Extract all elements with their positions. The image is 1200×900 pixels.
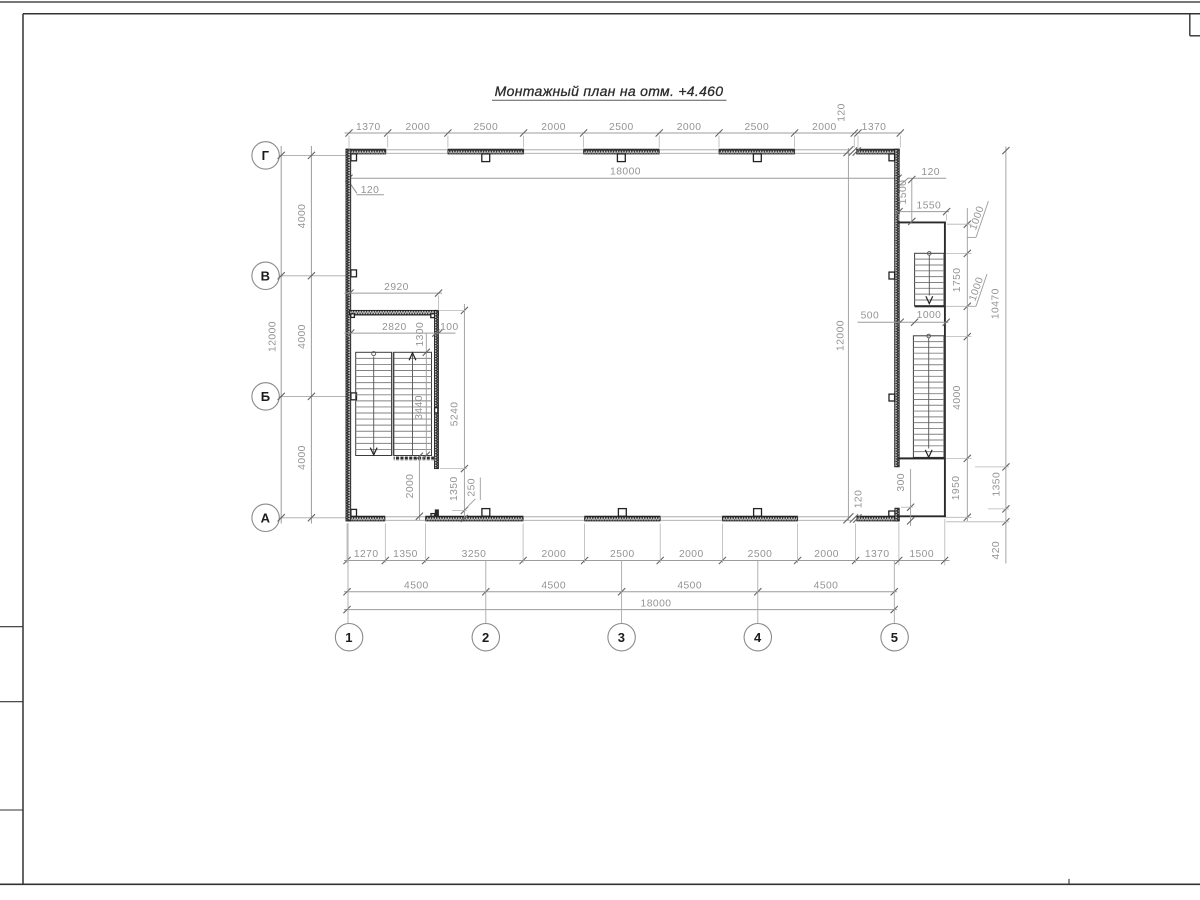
svg-text:1: 1 — [345, 630, 353, 645]
svg-text:18000: 18000 — [610, 167, 641, 178]
svg-text:1350: 1350 — [992, 472, 1003, 497]
svg-text:2500: 2500 — [609, 122, 634, 133]
svg-text:4500: 4500 — [677, 581, 702, 592]
svg-text:500: 500 — [861, 310, 880, 321]
svg-text:250: 250 — [466, 478, 477, 497]
svg-text:1370: 1370 — [865, 549, 890, 560]
svg-text:1950: 1950 — [951, 476, 962, 501]
svg-text:12000: 12000 — [267, 321, 278, 352]
svg-text:2000: 2000 — [679, 549, 704, 560]
svg-text:1500: 1500 — [898, 180, 909, 205]
svg-text:1370: 1370 — [356, 122, 381, 133]
svg-text:2500: 2500 — [748, 549, 773, 560]
svg-text:5: 5 — [891, 630, 899, 645]
svg-text:2500: 2500 — [744, 122, 769, 133]
svg-text:120: 120 — [836, 103, 847, 122]
svg-text:4000: 4000 — [952, 385, 963, 410]
svg-text:4: 4 — [754, 630, 762, 645]
svg-text:2000: 2000 — [812, 122, 837, 133]
svg-text:4500: 4500 — [541, 581, 566, 592]
svg-text:2000: 2000 — [541, 122, 566, 133]
svg-text:3440: 3440 — [414, 395, 425, 420]
svg-text:100: 100 — [440, 322, 459, 333]
svg-text:10470: 10470 — [991, 288, 1002, 319]
svg-text:5240: 5240 — [449, 402, 460, 427]
svg-text:Б: Б — [261, 389, 271, 404]
svg-text:2000: 2000 — [405, 122, 430, 133]
svg-text:1500: 1500 — [909, 549, 934, 560]
svg-text:300: 300 — [896, 473, 907, 492]
svg-text:2000: 2000 — [677, 122, 702, 133]
svg-text:3: 3 — [618, 630, 626, 645]
svg-text:Монтажный план на отм. +4.460: Монтажный план на отм. +4.460 — [495, 83, 724, 99]
svg-text:1350: 1350 — [393, 549, 418, 560]
svg-text:2920: 2920 — [384, 282, 409, 293]
svg-text:3250: 3250 — [462, 549, 487, 560]
svg-text:120: 120 — [361, 185, 380, 196]
svg-text:4000: 4000 — [297, 445, 308, 470]
svg-text:1550: 1550 — [917, 200, 942, 211]
svg-text:120: 120 — [921, 167, 940, 178]
svg-text:4500: 4500 — [404, 581, 429, 592]
svg-text:2000: 2000 — [814, 549, 839, 560]
svg-text:1370: 1370 — [862, 122, 887, 133]
svg-text:1000: 1000 — [917, 310, 942, 321]
svg-text:420: 420 — [991, 541, 1002, 560]
svg-text:2000: 2000 — [542, 549, 567, 560]
svg-text:18000: 18000 — [641, 598, 672, 609]
svg-text:1300: 1300 — [415, 322, 426, 347]
svg-text:В: В — [261, 268, 271, 283]
svg-text:2500: 2500 — [610, 549, 635, 560]
svg-text:2000: 2000 — [405, 474, 416, 499]
svg-text:1750: 1750 — [952, 268, 963, 293]
svg-text:2500: 2500 — [473, 122, 498, 133]
svg-text:1270: 1270 — [354, 549, 379, 560]
svg-text:Г: Г — [262, 148, 270, 163]
svg-text:2: 2 — [482, 630, 490, 645]
svg-text:2820: 2820 — [382, 322, 407, 333]
svg-text:120: 120 — [854, 490, 865, 509]
svg-text:12000: 12000 — [836, 320, 847, 351]
svg-text:1350: 1350 — [449, 476, 460, 501]
svg-text:4000: 4000 — [297, 204, 308, 229]
svg-text:4000: 4000 — [297, 324, 308, 349]
svg-text:А: А — [261, 510, 271, 525]
svg-text:4500: 4500 — [814, 581, 839, 592]
